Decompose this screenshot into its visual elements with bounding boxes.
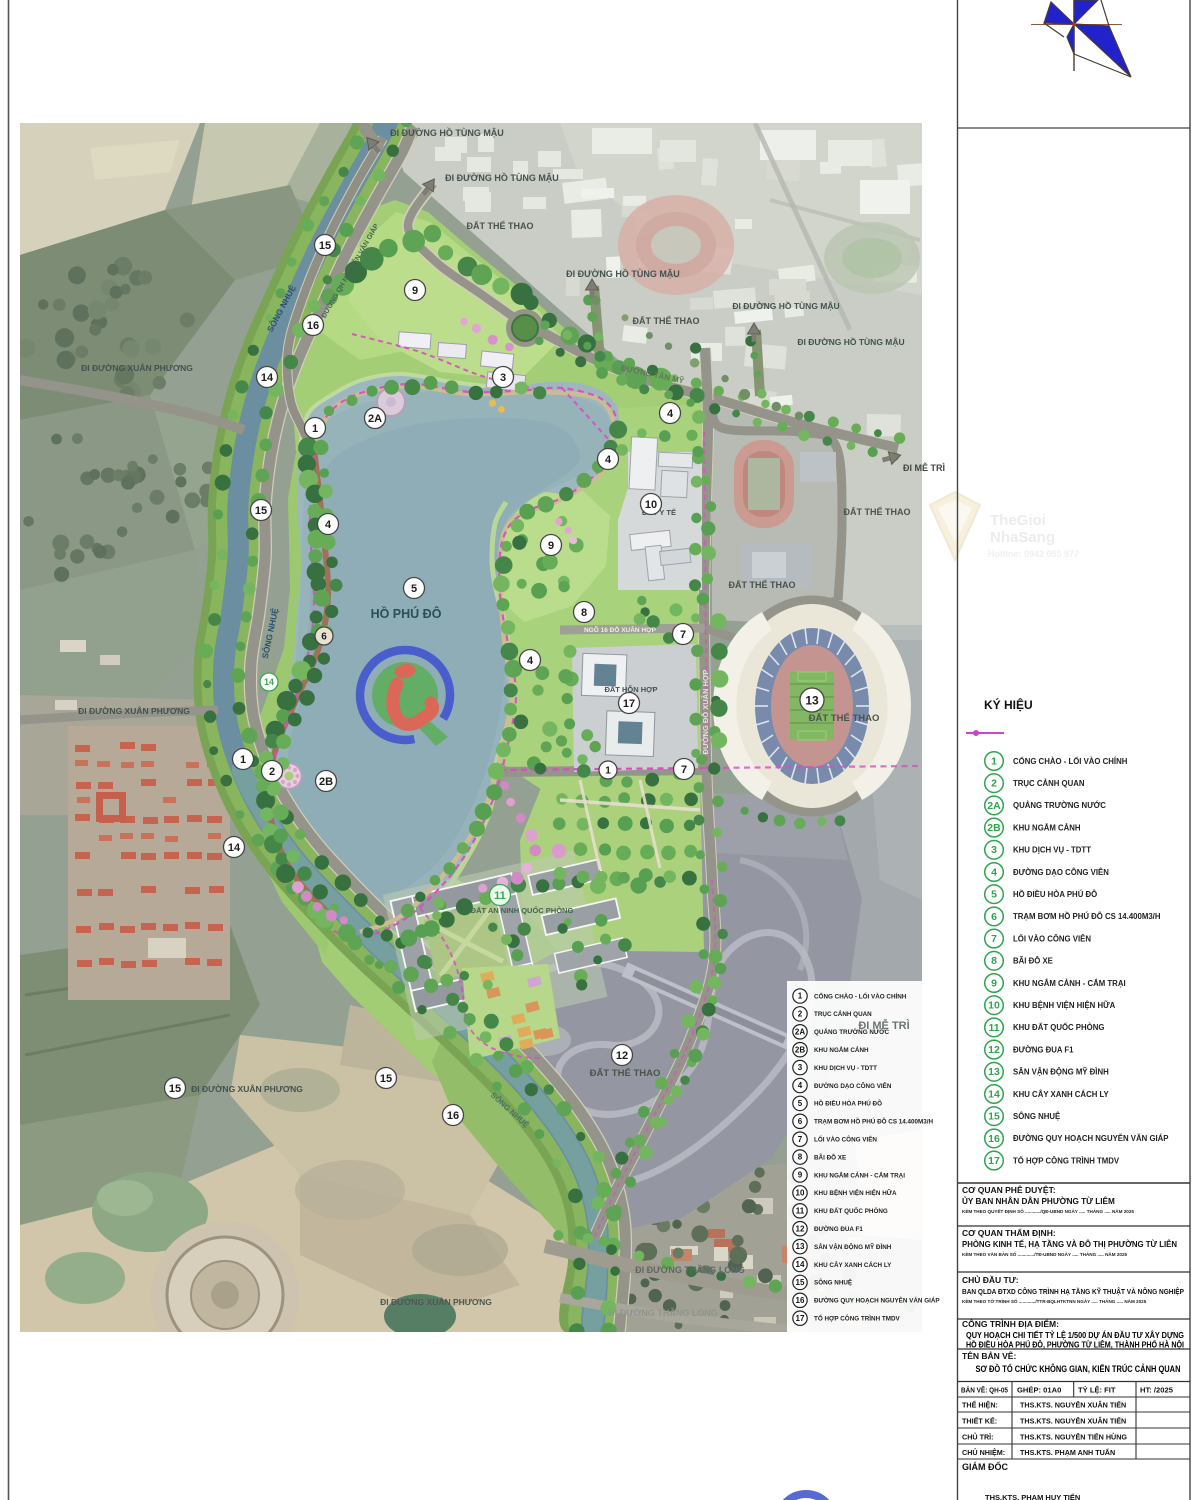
svg-text:ĐƯỜNG DẠO CÔNG VIÊN: ĐƯỜNG DẠO CÔNG VIÊN [814, 1081, 892, 1090]
svg-text:SƠ ĐỒ TỔ CHỨC KHÔNG GIAN, KIẾN: SƠ ĐỒ TỔ CHỨC KHÔNG GIAN, KIẾN TRÚC CẢNH… [976, 1363, 1181, 1374]
svg-text:CHỦ ĐẦU TƯ:: CHỦ ĐẦU TƯ: [962, 1274, 1019, 1285]
svg-text:KHU CÂY XANH CÁCH LY: KHU CÂY XANH CÁCH LY [1013, 1090, 1110, 1099]
svg-text:9: 9 [798, 1171, 803, 1180]
svg-text:KÈM THEO QUYẾT ĐỊNH SỐ .......: KÈM THEO QUYẾT ĐỊNH SỐ ............/QĐ-U… [962, 1207, 1134, 1214]
svg-text:TheGioi: TheGioi [990, 512, 1046, 529]
svg-text:THS.KTS. NGUYỄN XUÂN TIẾN: THS.KTS. NGUYỄN XUÂN TIẾN [1020, 1400, 1126, 1410]
svg-text:LỐI VÀO CÔNG VIÊN: LỐI VÀO CÔNG VIÊN [1013, 933, 1091, 943]
svg-text:2B: 2B [795, 1045, 805, 1054]
svg-text:NhaSang: NhaSang [990, 529, 1055, 546]
svg-text:ỦY BAN NHÂN DÂN PHƯỜNG TỪ LIÊM: ỦY BAN NHÂN DÂN PHƯỜNG TỪ LIÊM [962, 1195, 1115, 1206]
svg-text:TRỤC CẢNH QUAN: TRỤC CẢNH QUAN [1013, 779, 1085, 788]
svg-text:THS.KTS. NGUYỄN TIẾN HÙNG: THS.KTS. NGUYỄN TIẾN HÙNG [1020, 1432, 1127, 1442]
svg-text:KHU BỆNH VIỆN HIỆN HỮA: KHU BỆNH VIỆN HIỆN HỮA [1013, 1001, 1116, 1010]
svg-text:7: 7 [991, 933, 997, 945]
svg-text:9: 9 [991, 977, 997, 989]
svg-text:ĐI MỄ TRÌ: ĐI MỄ TRÌ [903, 462, 945, 473]
svg-text:16: 16 [988, 1133, 1000, 1145]
svg-text:BÃI ĐỖ XE: BÃI ĐỖ XE [814, 1152, 846, 1161]
svg-text:1: 1 [798, 992, 803, 1001]
svg-text:BAN QLDA ĐTXD CÔNG TRÌNH HẠ TẦ: BAN QLDA ĐTXD CÔNG TRÌNH HẠ TẦNG KỸ THUẬ… [962, 1286, 1184, 1296]
svg-text:THỂ HIỆN:: THỂ HIỆN: [962, 1401, 998, 1410]
svg-text:16: 16 [796, 1296, 805, 1305]
svg-text:10: 10 [988, 1000, 1000, 1012]
svg-text:5: 5 [991, 889, 997, 901]
svg-text:BẢN VẼ: QH-05: BẢN VẼ: QH-05 [961, 1386, 1009, 1395]
svg-text:TỔ HỢP CÔNG TRÌNH TMDV: TỔ HỢP CÔNG TRÌNH TMDV [814, 1314, 901, 1323]
svg-text:KHU BỆNH VIỆN HIỆN HỮA: KHU BỆNH VIỆN HIỆN HỮA [814, 1188, 897, 1197]
svg-text:2A: 2A [795, 1027, 805, 1036]
svg-text:KÈM THEO TỜ TRÌNH SỐ .........: KÈM THEO TỜ TRÌNH SỐ ............./TTR-B… [962, 1297, 1147, 1304]
svg-text:12: 12 [796, 1224, 805, 1233]
svg-text:TRẠM BƠM HỒ PHÚ ĐÔ CS 14.400M: TRẠM BƠM HỒ PHÚ ĐÔ CS 14.400M3/H [1013, 911, 1161, 921]
svg-text:8: 8 [991, 955, 997, 967]
svg-text:HỒ ĐIỀU HÒA PHÚ ĐÔ: HỒ ĐIỀU HÒA PHÚ ĐÔ [1013, 889, 1097, 899]
svg-text:15: 15 [796, 1278, 805, 1287]
svg-text:SÔNG NHUỆ: SÔNG NHUỆ [814, 1278, 852, 1287]
svg-text:THS.KTS. PHẠM HUY TIẾN: THS.KTS. PHẠM HUY TIẾN [985, 1492, 1080, 1500]
svg-text:TÊN BẢN VẼ:: TÊN BẢN VẼ: [962, 1350, 1016, 1361]
svg-text:KHU NGẮM CẢNH - CẮM TRẠI: KHU NGẮM CẢNH - CẮM TRẠI [1013, 979, 1126, 988]
svg-text:THS.KTS. PHẠM ANH TUẤN: THS.KTS. PHẠM ANH TUẤN [1020, 1447, 1115, 1457]
svg-text:8: 8 [798, 1153, 803, 1162]
svg-text:TỶ LỆ: FIT: TỶ LỆ: FIT [1078, 1386, 1116, 1395]
svg-text:CƠ QUAN THẨM ĐỊNH:: CƠ QUAN THẨM ĐỊNH: [962, 1227, 1056, 1238]
svg-text:14: 14 [988, 1088, 1000, 1100]
svg-text:KHU CÂY XANH CÁCH LY: KHU CÂY XANH CÁCH LY [814, 1260, 892, 1269]
svg-text:PHÒNG KINH TẾ, HẠ TẦNG VÀ ĐÔ T: PHÒNG KINH TẾ, HẠ TẦNG VÀ ĐÔ THỊ PHƯỜNG … [962, 1238, 1177, 1249]
svg-text:4: 4 [991, 866, 997, 878]
svg-text:CỔNG CHÀO - LỐI VÀO CHÍNH: CỔNG CHÀO - LỐI VÀO CHÍNH [1013, 756, 1128, 766]
svg-text:6: 6 [991, 911, 997, 923]
svg-text:11: 11 [796, 1206, 805, 1215]
svg-text:13: 13 [988, 1066, 1000, 1078]
svg-text:ĐƯỜNG ĐUA F1: ĐƯỜNG ĐUA F1 [1013, 1045, 1074, 1054]
svg-text:17: 17 [796, 1314, 805, 1323]
svg-text:6: 6 [798, 1117, 803, 1126]
svg-text:13: 13 [796, 1242, 805, 1251]
svg-text:QUY HOẠCH CHI TIẾT TỶ LỆ 1/500: QUY HOẠCH CHI TIẾT TỶ LỆ 1/500 DỰ ÁN ĐẦU… [966, 1329, 1184, 1340]
svg-text:GHÉP: 01A0: GHÉP: 01A0 [1017, 1386, 1061, 1395]
svg-text:3: 3 [991, 844, 997, 856]
svg-text:CÔNG TRÌNH ĐỊA ĐIỂM:: CÔNG TRÌNH ĐỊA ĐIỂM: [962, 1318, 1059, 1329]
svg-text:14: 14 [796, 1260, 805, 1269]
svg-text:SÂN VẬN ĐỘNG MỸ ĐÌNH: SÂN VẬN ĐỘNG MỸ ĐÌNH [814, 1242, 892, 1251]
svg-text:3: 3 [798, 1063, 803, 1072]
svg-text:10: 10 [796, 1189, 805, 1198]
svg-text:ĐI MỄ TRÌ: ĐI MỄ TRÌ [858, 1019, 909, 1032]
svg-text:KHU ĐẤT QUỐC PHÒNG: KHU ĐẤT QUỐC PHÒNG [1013, 1022, 1104, 1032]
svg-text:11: 11 [988, 1022, 999, 1034]
svg-text:ĐƯỜNG ĐUA F1: ĐƯỜNG ĐUA F1 [814, 1224, 863, 1233]
svg-text:2B: 2B [987, 822, 1001, 834]
svg-text:1: 1 [991, 755, 997, 767]
svg-text:ĐƯỜNG DẠO CÔNG VIÊN: ĐƯỜNG DẠO CÔNG VIÊN [1013, 868, 1109, 877]
svg-text:12: 12 [988, 1044, 1000, 1056]
svg-text:BÃI ĐỖ XE: BÃI ĐỖ XE [1013, 957, 1053, 966]
svg-text:HT: /2025: HT: /2025 [1140, 1386, 1174, 1395]
svg-text:KHU NGẮM CẢNH: KHU NGẮM CẢNH [814, 1045, 869, 1054]
svg-text:TỔ HỢP CÔNG TRÌNH TMDV: TỔ HỢP CÔNG TRÌNH TMDV [1013, 1156, 1120, 1165]
svg-text:SÂN VẬN ĐỘNG MỸ ĐÌNH: SÂN VẬN ĐỘNG MỸ ĐÌNH [1013, 1068, 1109, 1077]
svg-text:CƠ QUAN PHÊ DUYỆT:: CƠ QUAN PHÊ DUYỆT: [962, 1184, 1056, 1195]
svg-text:ĐƯỜNG QUY HOẠCH NGUYỄN VĂN GIÁ: ĐƯỜNG QUY HOẠCH NGUYỄN VĂN GIÁP [814, 1296, 940, 1305]
svg-text:THIẾT KẾ:: THIẾT KẾ: [962, 1416, 997, 1426]
svg-text:2A: 2A [987, 800, 1001, 812]
svg-text:TRỤC CẢNH QUAN: TRỤC CẢNH QUAN [814, 1009, 872, 1018]
svg-text:17: 17 [988, 1155, 1000, 1167]
svg-text:KHU DỊCH VỤ - TDTT: KHU DỊCH VỤ - TDTT [814, 1065, 877, 1072]
svg-text:GIÁM ĐỐC: GIÁM ĐỐC [962, 1461, 1008, 1472]
svg-text:KHU DỊCH VỤ - TDTT: KHU DỊCH VỤ - TDTT [1013, 846, 1091, 855]
svg-text:THS.KTS. NGUYỄN XUÂN TIẾN: THS.KTS. NGUYỄN XUÂN TIẾN [1020, 1416, 1126, 1426]
svg-text:HỒ ĐIỀU HÒA PHÚ ĐÔ, PHƯỜNG TỪ: HỒ ĐIỀU HÒA PHÚ ĐÔ, PHƯỜNG TỪ LIÊM, THÀN… [966, 1339, 1184, 1350]
svg-text:KHU NGẮM CẢNH - CẮM TRẠI: KHU NGẮM CẢNH - CẮM TRẠI [814, 1170, 905, 1179]
svg-text:2: 2 [991, 778, 997, 790]
svg-text:KÝ HIỆU: KÝ HIỆU [984, 697, 1033, 712]
svg-text:2: 2 [798, 1010, 803, 1019]
svg-text:SÔNG NHUỆ: SÔNG NHUỆ [1013, 1112, 1060, 1121]
svg-text:7: 7 [798, 1135, 803, 1144]
svg-text:Hotline: 0942 055 577: Hotline: 0942 055 577 [988, 549, 1079, 559]
svg-text:5: 5 [798, 1099, 803, 1108]
svg-text:ĐƯỜNG QUY HOẠCH NGUYỄN VĂN GIÁ: ĐƯỜNG QUY HOẠCH NGUYỄN VĂN GIÁP [1013, 1134, 1169, 1143]
svg-text:CHỦ NHIỆM:: CHỦ NHIỆM: [962, 1448, 1005, 1457]
svg-text:KÈM THEO VĂN BẢN SỐ .........: KÈM THEO VĂN BẢN SỐ ............./TĐ-UBN… [962, 1250, 1127, 1257]
svg-text:QUẢNG TRƯỜNG NƯỚC: QUẢNG TRƯỜNG NƯỚC [1013, 801, 1106, 810]
svg-text:CHỦ TRÌ:: CHỦ TRÌ: [962, 1433, 994, 1442]
svg-text:KHU NGẮM CẢNH: KHU NGẮM CẢNH [1013, 823, 1081, 832]
svg-text:15: 15 [988, 1111, 1000, 1123]
svg-text:4: 4 [798, 1081, 803, 1090]
